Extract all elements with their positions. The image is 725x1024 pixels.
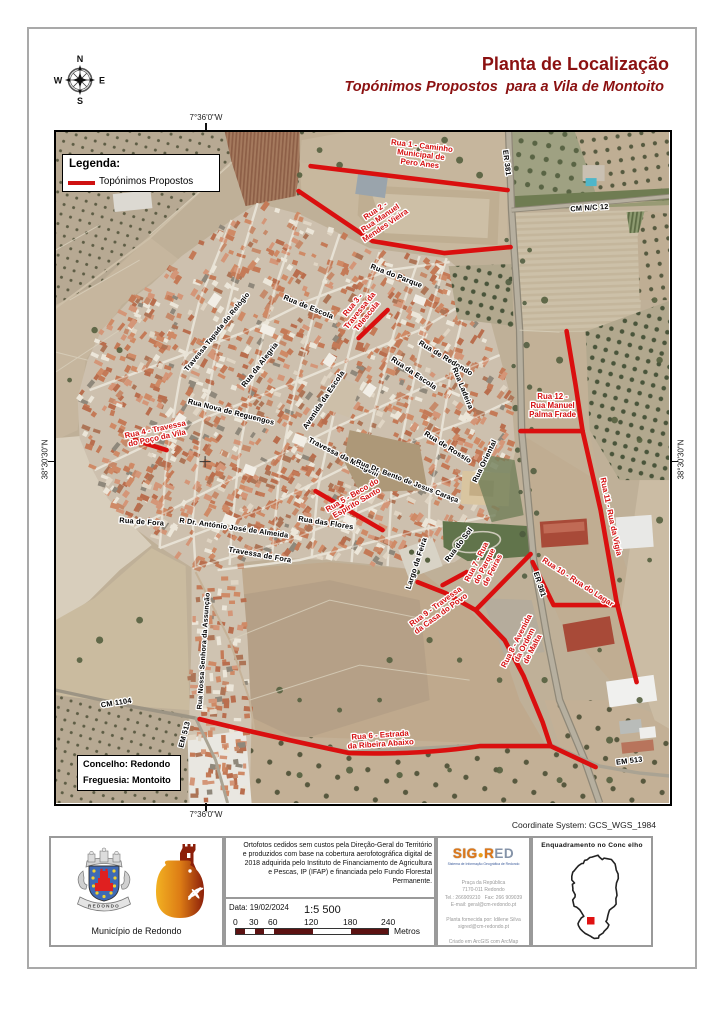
- svg-text:S: S: [77, 96, 83, 106]
- svg-text:E: E: [99, 76, 105, 86]
- svg-text:Rua Manuel: Rua Manuel: [530, 401, 574, 410]
- svg-text:N: N: [77, 54, 84, 64]
- svg-text:REDONDO: REDONDO: [88, 904, 120, 909]
- svg-text:Palma Frade: Palma Frade: [529, 410, 577, 419]
- svg-text:W: W: [54, 76, 63, 86]
- svg-text:Rua 12 -: Rua 12 -: [537, 392, 568, 401]
